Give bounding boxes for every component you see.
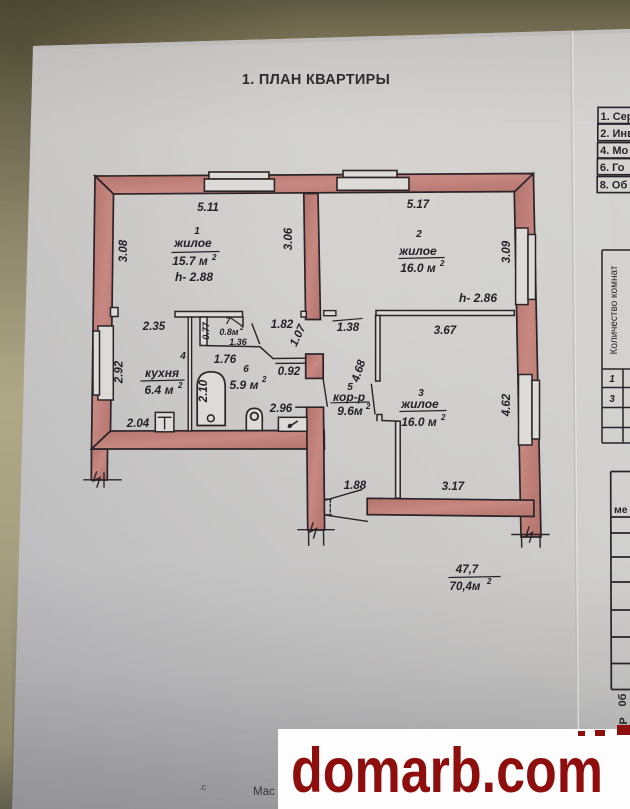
svg-text:1. Сер: 1. Сер <box>601 111 630 123</box>
svg-text:.c: .c <box>199 782 207 792</box>
svg-text:8. Об: 8. Об <box>600 180 628 192</box>
svg-text:3.17: 3.17 <box>442 481 465 493</box>
svg-text:2: 2 <box>365 402 371 411</box>
svg-text:0б: 0б <box>617 693 629 706</box>
svg-text:3.06: 3.06 <box>283 227 295 250</box>
svg-text:2.96: 2.96 <box>269 403 293 415</box>
svg-text:4.62: 4.62 <box>501 393 513 417</box>
svg-text:6.4 м: 6.4 м <box>145 383 174 397</box>
svg-text:2: 2 <box>415 229 422 240</box>
svg-text:2: 2 <box>486 577 492 586</box>
svg-text:2.92: 2.92 <box>114 360 126 384</box>
svg-text:5.11: 5.11 <box>197 202 219 214</box>
svg-text:1.38: 1.38 <box>337 322 360 334</box>
svg-text:16.0 м: 16.0 м <box>400 261 436 275</box>
svg-text:4. Мо: 4. Мо <box>600 145 628 157</box>
svg-text:2.04: 2.04 <box>126 418 150 430</box>
svg-text:3.08: 3.08 <box>118 239 130 262</box>
svg-text:жилое: жилое <box>173 236 212 250</box>
svg-text:3: 3 <box>609 394 615 405</box>
svg-text:1.82: 1.82 <box>271 319 294 331</box>
svg-text:Мас: Мас <box>253 786 275 798</box>
svg-text:ме: ме <box>614 504 628 516</box>
svg-text:2.35: 2.35 <box>142 321 166 333</box>
svg-text:2. Инв: 2. Инв <box>600 128 630 140</box>
svg-text:2: 2 <box>440 413 446 422</box>
svg-text:2: 2 <box>211 253 217 262</box>
svg-text:h- 2.86: h- 2.86 <box>459 291 497 305</box>
svg-text:47,7: 47,7 <box>455 564 479 576</box>
svg-text:15.7 м: 15.7 м <box>172 254 208 268</box>
svg-text:3.09: 3.09 <box>501 240 513 263</box>
svg-text:0.8м: 0.8м <box>219 327 239 337</box>
svg-text:9.6м: 9.6м <box>337 404 363 418</box>
svg-text:Количество комнат: Количество комнат <box>609 265 620 354</box>
svg-text:h- 2.88: h- 2.88 <box>175 270 213 284</box>
svg-text:4: 4 <box>179 351 186 362</box>
svg-text:2: 2 <box>177 381 183 390</box>
svg-text:70,4м: 70,4м <box>450 581 481 593</box>
svg-text:жилое: жилое <box>400 397 439 411</box>
svg-text:кухня: кухня <box>145 366 179 380</box>
svg-text:1: 1 <box>609 374 615 385</box>
svg-text:0.77: 0.77 <box>201 321 211 340</box>
svg-text:5.9 м: 5.9 м <box>230 378 259 392</box>
svg-text:3.67: 3.67 <box>434 325 457 337</box>
svg-text:2: 2 <box>261 375 267 384</box>
svg-text:2: 2 <box>239 325 244 332</box>
svg-text:жилое: жилое <box>398 244 437 258</box>
svg-text:16.0 м: 16.0 м <box>401 415 437 429</box>
svg-text:domarb.com: domarb.com <box>291 736 603 806</box>
svg-text:0.92: 0.92 <box>278 366 301 378</box>
svg-text:1.88: 1.88 <box>344 480 367 492</box>
svg-text:2.10: 2.10 <box>198 379 210 403</box>
svg-text:Р: Р <box>618 717 630 724</box>
svg-text:6. Го: 6. Го <box>600 162 625 174</box>
svg-text:1. ПЛАН КВАРТИРЫ: 1. ПЛАН КВАРТИРЫ <box>242 72 390 88</box>
svg-text:6: 6 <box>243 364 249 375</box>
svg-text:5.17: 5.17 <box>407 199 430 211</box>
svg-text:2: 2 <box>439 259 445 268</box>
svg-text:1.76: 1.76 <box>214 354 237 366</box>
svg-text:1.36: 1.36 <box>229 337 248 347</box>
